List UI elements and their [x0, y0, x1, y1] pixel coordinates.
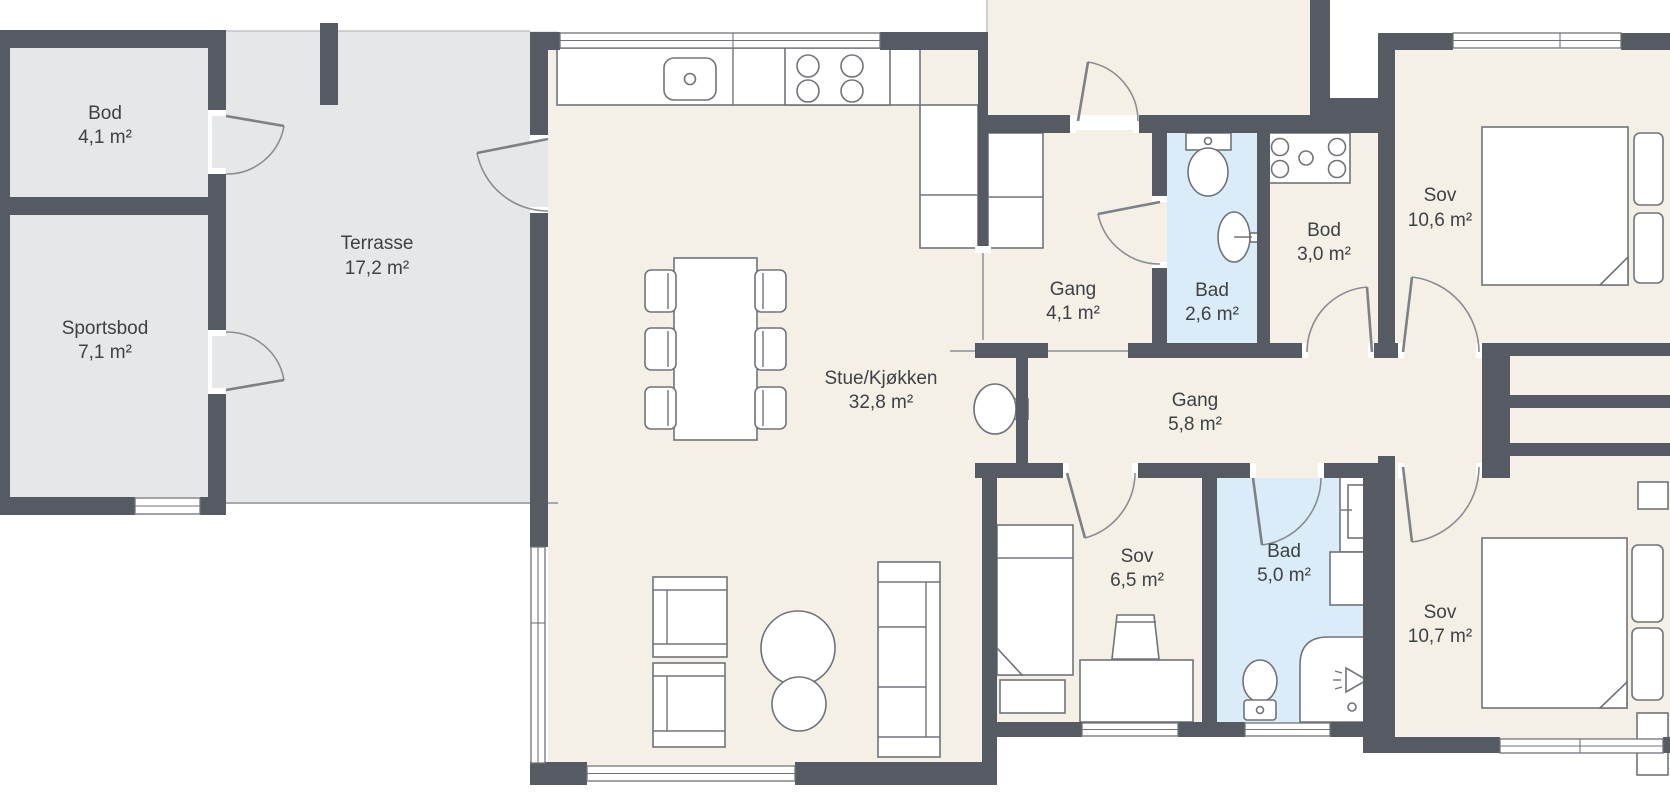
wall [1378, 33, 1395, 352]
area-sportsbod: 7,1 m² [78, 342, 132, 363]
double-bed-icon [1482, 127, 1628, 285]
fireplace-icon [974, 384, 1016, 434]
window [531, 547, 545, 763]
floor-plan-canvas: Bod 4,1 m² Sportsbod 7,1 m² Terrasse 17,… [0, 0, 1670, 800]
wall [530, 32, 560, 50]
wall [795, 762, 997, 785]
area-gang-main: 5,8 m² [1168, 414, 1222, 435]
pillow-icon [1632, 628, 1663, 700]
wall [1016, 358, 1028, 465]
area-bad-large: 5,0 m² [1257, 565, 1311, 586]
wall [880, 32, 988, 50]
wall [1621, 33, 1670, 50]
wall [1128, 343, 1260, 358]
window [135, 498, 200, 514]
stove-burners-icon [841, 55, 863, 77]
toilet-icon [1188, 148, 1228, 196]
window [1453, 33, 1621, 48]
label-terrasse: Terrasse [341, 233, 414, 254]
wall [1663, 737, 1670, 753]
wall [208, 30, 226, 114]
floor-plan: Bod 4,1 m² Sportsbod 7,1 m² Terrasse 17,… [0, 0, 1670, 800]
area-bad-small: 2,6 m² [1185, 304, 1239, 325]
wall [1217, 463, 1253, 478]
wall [1178, 722, 1245, 737]
dining-table-icon [674, 258, 757, 440]
wall [978, 48, 988, 252]
wall [1330, 722, 1378, 737]
wall [997, 722, 1082, 737]
area-terrasse: 17,2 m² [345, 258, 409, 279]
wall [1482, 443, 1670, 456]
wall [1363, 478, 1378, 737]
dining-chair-icon [755, 328, 786, 370]
wall [982, 473, 997, 785]
kitchen-cabinet-icon [920, 105, 978, 248]
wall [988, 343, 1048, 358]
area-sov-ne: 10,6 m² [1408, 210, 1472, 231]
floor-porch [987, 0, 1325, 115]
pillow-icon [1634, 213, 1663, 283]
sink-drain [685, 74, 696, 85]
window [587, 766, 795, 781]
wall [0, 30, 212, 48]
wall [1507, 395, 1670, 408]
area-sov-small: 6,5 m² [1110, 570, 1164, 591]
window [1082, 723, 1178, 736]
wall [208, 390, 226, 515]
wall [530, 211, 548, 547]
label-bod-left: Bod [88, 103, 122, 124]
desk-icon [1080, 660, 1193, 722]
area-sov-se: 10,7 m² [1408, 626, 1472, 647]
label-gang-entre: Gang [1050, 279, 1096, 300]
nightstand-icon [1000, 680, 1065, 713]
coffee-table-icon [772, 677, 826, 731]
wall [1257, 130, 1270, 358]
label-stue: Stue/Kjøkken [825, 368, 938, 389]
shower-drain [1348, 703, 1356, 711]
wall [0, 497, 135, 515]
area-gang-entre: 4,1 m² [1046, 303, 1100, 324]
wall [987, 115, 1075, 133]
label-sportsbod: Sportsbod [62, 318, 149, 339]
stove-burners-icon [797, 55, 819, 77]
wall [1395, 33, 1453, 50]
armchair-icon [653, 577, 727, 657]
label-gang-main: Gang [1172, 390, 1218, 411]
wall [1202, 463, 1217, 722]
pillow-icon [1634, 133, 1663, 205]
wall [530, 762, 587, 785]
wall [320, 23, 338, 105]
wall [1363, 737, 1500, 753]
toilet-icon [1243, 660, 1277, 702]
window [1245, 723, 1330, 736]
label-bad-large: Bad [1267, 541, 1301, 562]
wall [0, 197, 212, 215]
wall [975, 343, 988, 358]
pillow-icon [1632, 545, 1663, 622]
dining-chair-icon [755, 270, 786, 312]
area-stue: 32,8 m² [849, 392, 913, 413]
label-bad-small: Bad [1195, 280, 1229, 301]
single-bed-icon [997, 525, 1073, 675]
dining-chair-icon [645, 387, 676, 429]
wall [1152, 130, 1167, 200]
double-bed-icon [1482, 538, 1627, 708]
label-bod-inner: Bod [1307, 220, 1341, 241]
wall [0, 30, 10, 515]
wall [1482, 343, 1510, 478]
wall [1152, 265, 1167, 358]
dining-chair-icon [645, 270, 676, 312]
stove-burners-icon [841, 80, 863, 102]
stove-burners-icon [797, 80, 819, 102]
hall-closet-icon [988, 133, 1043, 248]
nightstand-icon [1638, 482, 1668, 509]
wall [1137, 463, 1202, 478]
label-sov-se: Sov [1424, 602, 1457, 623]
area-bod-left: 4,1 m² [78, 127, 132, 148]
dining-chair-icon [645, 328, 676, 370]
label-sov-small: Sov [1121, 546, 1154, 567]
wall [1372, 343, 1400, 358]
sofa-icon [878, 562, 940, 757]
label-sov-ne: Sov [1424, 185, 1457, 206]
wall [530, 50, 548, 137]
window [560, 33, 880, 48]
wall [1482, 343, 1670, 356]
wall-cap [975, 246, 991, 253]
area-bod-inner: 3,0 m² [1297, 244, 1351, 265]
dining-chair-icon [755, 387, 786, 429]
coffee-table-icon [761, 611, 835, 685]
wall [1378, 456, 1395, 753]
wall [208, 170, 226, 332]
window [1500, 739, 1663, 753]
